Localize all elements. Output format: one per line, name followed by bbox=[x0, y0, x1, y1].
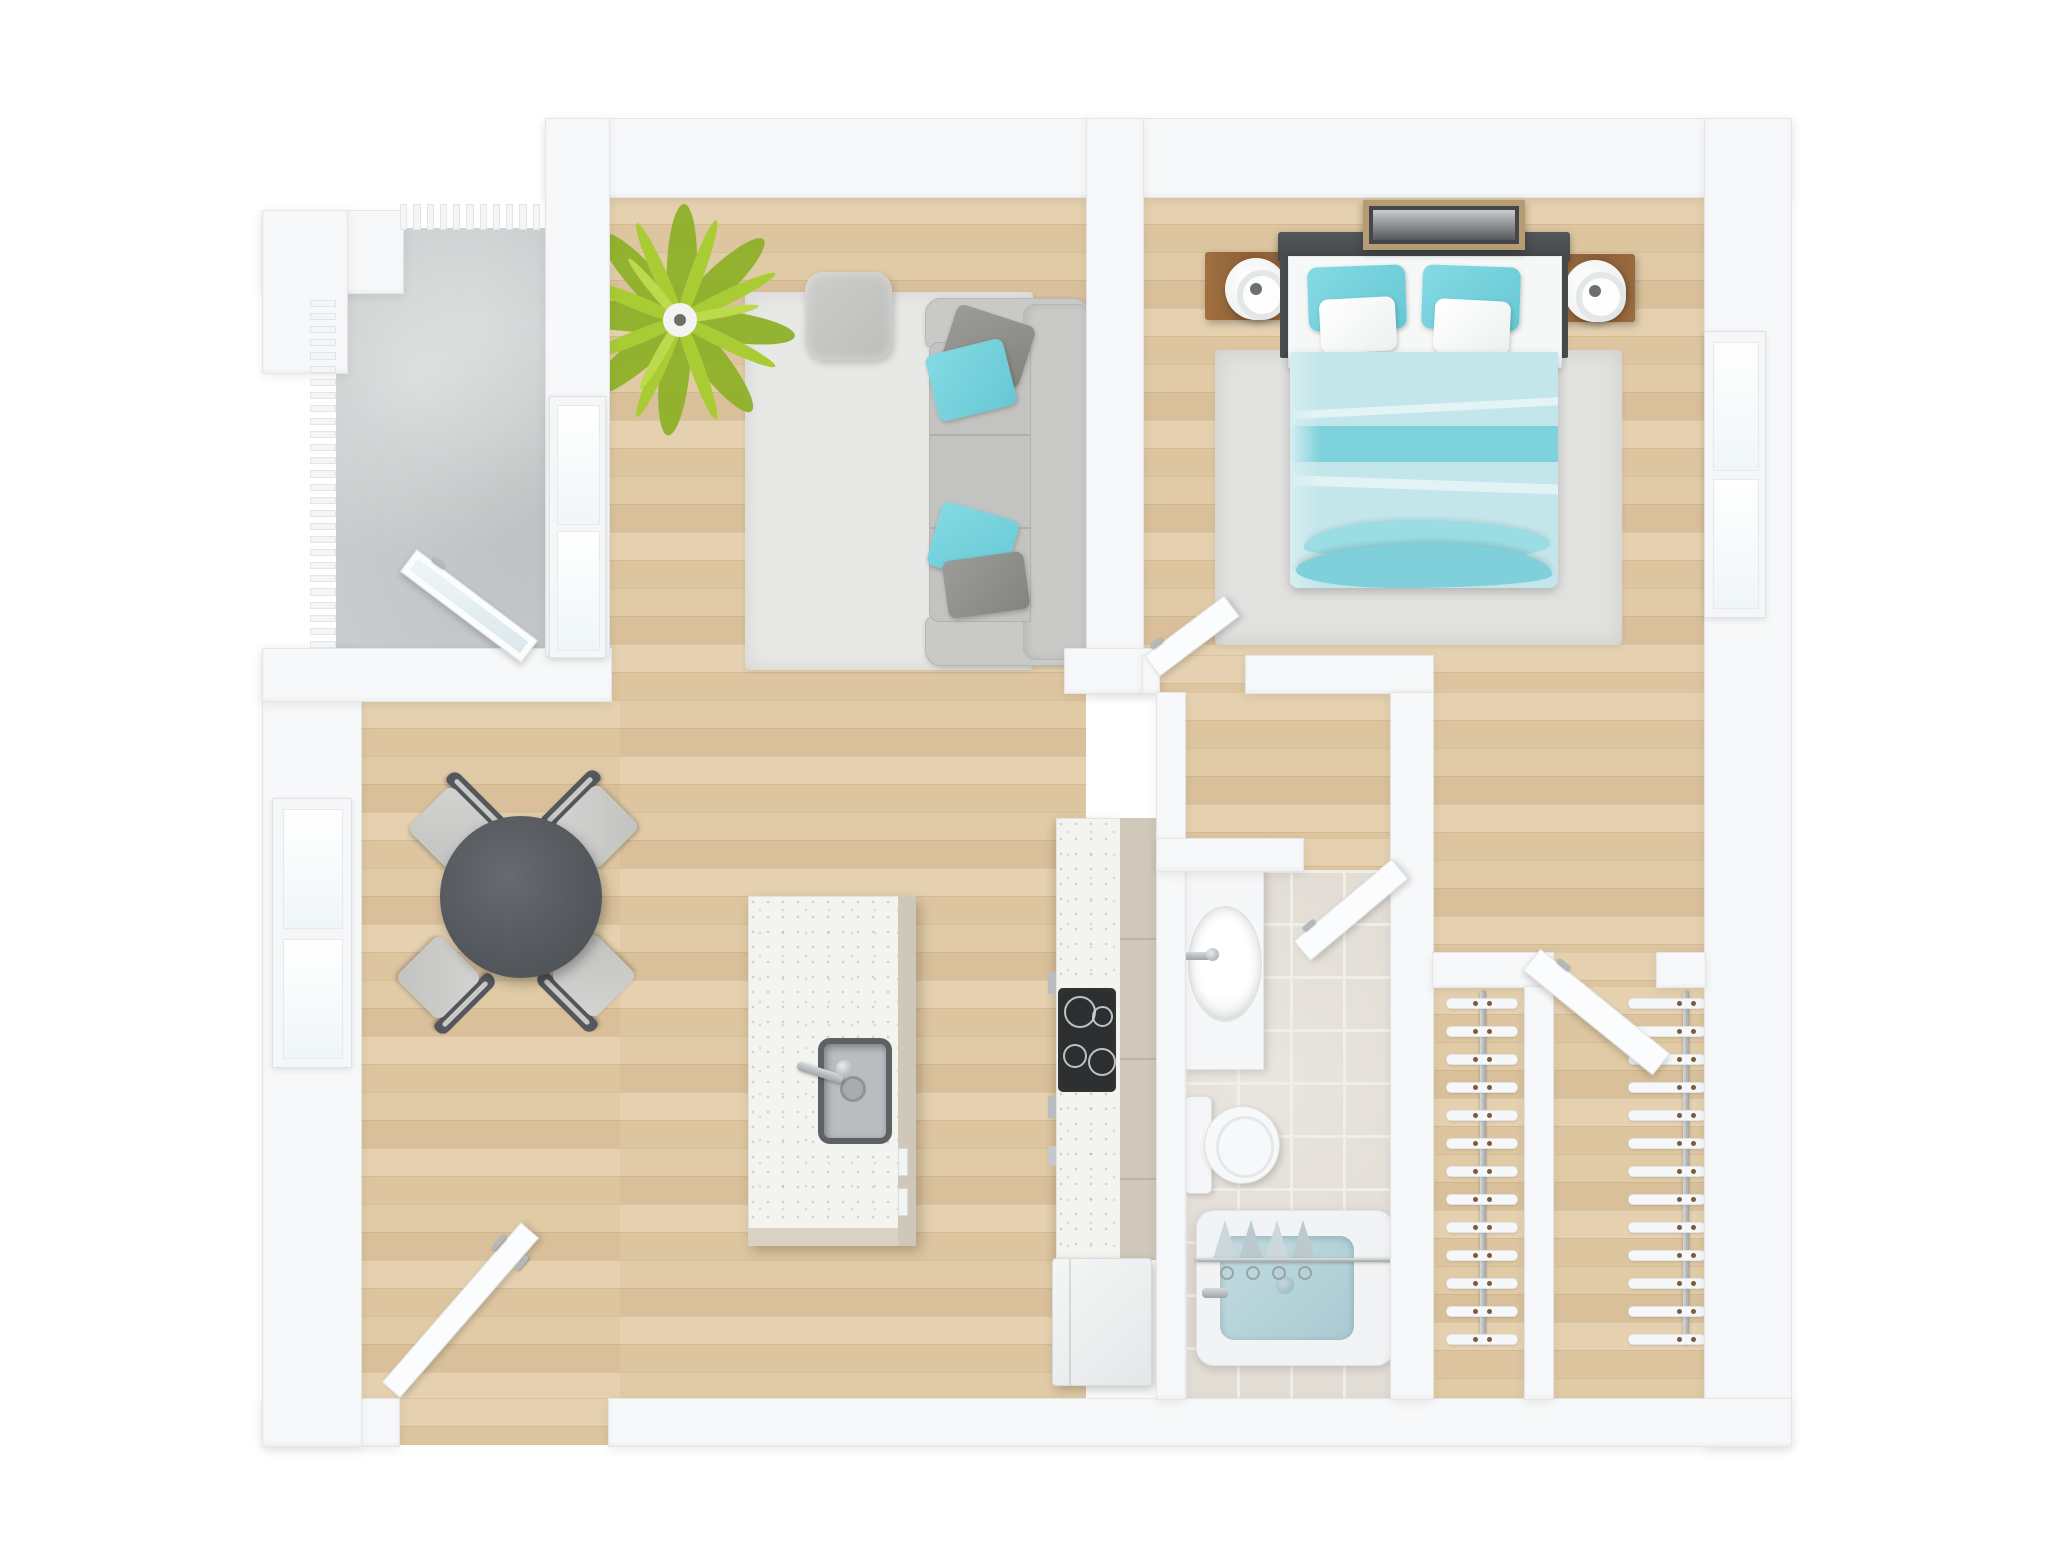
dining-window bbox=[272, 798, 352, 1068]
hall-floor-right bbox=[1432, 692, 1704, 954]
closet-left-hangers bbox=[1446, 998, 1518, 1362]
railing-slat bbox=[453, 204, 460, 230]
railing-slat bbox=[310, 536, 336, 543]
wall-kitchen-bath bbox=[1156, 692, 1186, 1400]
drawer-handle bbox=[1048, 1146, 1056, 1166]
hanger bbox=[1628, 1278, 1706, 1289]
wall-right bbox=[1704, 118, 1792, 1447]
railing-slat bbox=[310, 549, 336, 556]
dining-area bbox=[380, 770, 660, 1050]
railing-slat bbox=[310, 392, 336, 399]
window-pane bbox=[1713, 342, 1759, 471]
railing-slat bbox=[310, 510, 336, 517]
hanger bbox=[1628, 1110, 1706, 1121]
railing-slat bbox=[440, 204, 447, 230]
living-room bbox=[560, 190, 1100, 690]
ottoman bbox=[805, 272, 892, 360]
railing-slat bbox=[480, 204, 487, 230]
hanger bbox=[1628, 1306, 1706, 1317]
railing-slat bbox=[493, 204, 500, 230]
blanket-fold-line bbox=[1290, 475, 1558, 495]
hanger bbox=[1628, 998, 1706, 1009]
railing-slat bbox=[310, 366, 336, 373]
entry-doorway-floor bbox=[398, 1398, 608, 1445]
curtain-fold bbox=[1290, 1220, 1316, 1262]
glass-pane bbox=[557, 531, 600, 651]
bed-pillow-white-left bbox=[1319, 296, 1398, 354]
curtain-hook bbox=[1220, 1266, 1234, 1280]
railing-slat bbox=[310, 562, 336, 569]
hall-floor-bath bbox=[1184, 692, 1390, 838]
curtain-fold bbox=[1238, 1220, 1264, 1262]
hanger bbox=[1446, 1054, 1518, 1065]
wall-closet-divider bbox=[1524, 986, 1554, 1400]
railing-slat bbox=[310, 352, 336, 359]
wall-top bbox=[545, 118, 1792, 198]
railing-slat bbox=[400, 204, 407, 230]
hanger bbox=[1628, 1334, 1706, 1345]
bed-pillow-white-right bbox=[1433, 298, 1512, 356]
railing-slat bbox=[310, 444, 336, 451]
sofa-pillow-gray-bottom bbox=[941, 551, 1030, 620]
curtain-fold bbox=[1212, 1220, 1238, 1262]
railing-slat bbox=[310, 379, 336, 386]
sofa-backrest bbox=[1023, 304, 1090, 660]
hanger bbox=[1446, 998, 1518, 1009]
burner bbox=[1088, 1048, 1116, 1076]
railing-slat bbox=[310, 575, 336, 582]
balcony-glass-door-fixed bbox=[549, 396, 606, 658]
railing-slat bbox=[533, 204, 540, 230]
burner bbox=[1063, 1044, 1087, 1068]
lamp-right-ring bbox=[1576, 272, 1626, 322]
window-pane bbox=[283, 939, 343, 1059]
railing-slat bbox=[427, 204, 434, 230]
burner bbox=[1064, 996, 1096, 1028]
island-front bbox=[748, 1228, 898, 1246]
hanger bbox=[1446, 1306, 1518, 1317]
lamp-left-center bbox=[1250, 283, 1262, 295]
hanger bbox=[1446, 1026, 1518, 1037]
bedroom-wall-art bbox=[1363, 200, 1525, 250]
hanger bbox=[1446, 1166, 1518, 1177]
curtain-hook bbox=[1272, 1266, 1286, 1280]
hanger bbox=[1628, 1250, 1706, 1261]
hanger bbox=[1628, 1222, 1706, 1233]
railing-slat bbox=[310, 588, 336, 595]
burner bbox=[1092, 1006, 1113, 1027]
railing-slat bbox=[310, 497, 336, 504]
blanket-fold-line bbox=[1290, 396, 1558, 420]
curtain-hook bbox=[1246, 1266, 1260, 1280]
railing-slat bbox=[310, 615, 336, 622]
kitchen-island bbox=[748, 896, 916, 1246]
curtain-fold bbox=[1264, 1220, 1290, 1262]
lamp-right-center bbox=[1589, 285, 1601, 297]
hanger bbox=[1446, 1194, 1518, 1205]
hanger bbox=[1446, 1110, 1518, 1121]
sofa bbox=[925, 298, 1088, 664]
wall-bottom-right bbox=[608, 1398, 1792, 1447]
hanger bbox=[1628, 1166, 1706, 1177]
kitchen bbox=[740, 810, 1160, 1400]
hanger bbox=[1628, 1194, 1706, 1205]
island-drawer-handle bbox=[898, 1148, 908, 1176]
railing-slat bbox=[310, 431, 336, 438]
hanger bbox=[1446, 1278, 1518, 1289]
sink-drain bbox=[840, 1076, 866, 1102]
vanity-sink bbox=[1188, 906, 1262, 1022]
hanger bbox=[1628, 1082, 1706, 1093]
wall-art-inner bbox=[1373, 210, 1515, 240]
tub-faucet bbox=[1202, 1288, 1228, 1298]
blanket-teal-band bbox=[1290, 426, 1558, 462]
blanket bbox=[1290, 352, 1558, 588]
railing-slat bbox=[519, 204, 526, 230]
toilet bbox=[1184, 1094, 1280, 1194]
oven-handle bbox=[1048, 1096, 1056, 1118]
hanger bbox=[1446, 1082, 1518, 1093]
hanger bbox=[1628, 1138, 1706, 1149]
railing-slat bbox=[310, 484, 336, 491]
island-faucet-base bbox=[836, 1060, 853, 1077]
hanger bbox=[1446, 1138, 1518, 1149]
balcony-railing-left bbox=[310, 300, 336, 654]
refrigerator bbox=[1052, 1258, 1152, 1386]
glass-pane bbox=[557, 405, 600, 525]
wall-bedroom-bottom-b bbox=[1245, 655, 1434, 694]
closet-left bbox=[1432, 986, 1524, 1398]
window-pane bbox=[1713, 479, 1759, 609]
fridge-door-seam bbox=[1069, 1259, 1071, 1385]
kitchen-cabinet-band bbox=[1120, 818, 1158, 1260]
island-sink bbox=[818, 1038, 892, 1144]
floor-plan bbox=[0, 0, 2048, 1556]
balcony-railing-top bbox=[400, 204, 546, 230]
railing-slat bbox=[310, 300, 336, 307]
bed bbox=[1288, 232, 1560, 588]
oven-handle bbox=[1048, 972, 1056, 994]
railing-slat bbox=[413, 204, 420, 230]
railing-slat bbox=[310, 457, 336, 464]
railing-slat bbox=[310, 326, 336, 333]
railing-slat bbox=[310, 405, 336, 412]
wall-living-bedroom bbox=[1086, 118, 1144, 694]
railing-slat bbox=[310, 641, 336, 648]
railing-slat bbox=[310, 628, 336, 635]
railing-slat bbox=[310, 418, 336, 425]
window-pane bbox=[283, 809, 343, 929]
hanger bbox=[1446, 1334, 1518, 1345]
dining-table bbox=[440, 816, 602, 978]
island-drawer-handle bbox=[898, 1188, 908, 1216]
railing-slat bbox=[310, 313, 336, 320]
curtain-hook bbox=[1298, 1266, 1312, 1280]
wall-bathroom-top bbox=[1156, 838, 1304, 872]
toilet-seat-line bbox=[1216, 1116, 1274, 1178]
railing-slat bbox=[466, 204, 473, 230]
wall-hall-bath bbox=[1390, 692, 1434, 1400]
railing-slat bbox=[310, 523, 336, 530]
wall-closet-top-b bbox=[1656, 952, 1706, 988]
hanger bbox=[1446, 1250, 1518, 1261]
vanity-faucet-base bbox=[1206, 948, 1219, 961]
railing-slat bbox=[506, 204, 513, 230]
bedroom-window bbox=[1704, 331, 1766, 618]
bathroom-doorway-floor bbox=[1302, 838, 1390, 870]
cooktop bbox=[1058, 988, 1116, 1092]
railing-slat bbox=[310, 339, 336, 346]
hanger bbox=[1446, 1222, 1518, 1233]
railing-slat bbox=[310, 470, 336, 477]
railing-slat bbox=[310, 602, 336, 609]
